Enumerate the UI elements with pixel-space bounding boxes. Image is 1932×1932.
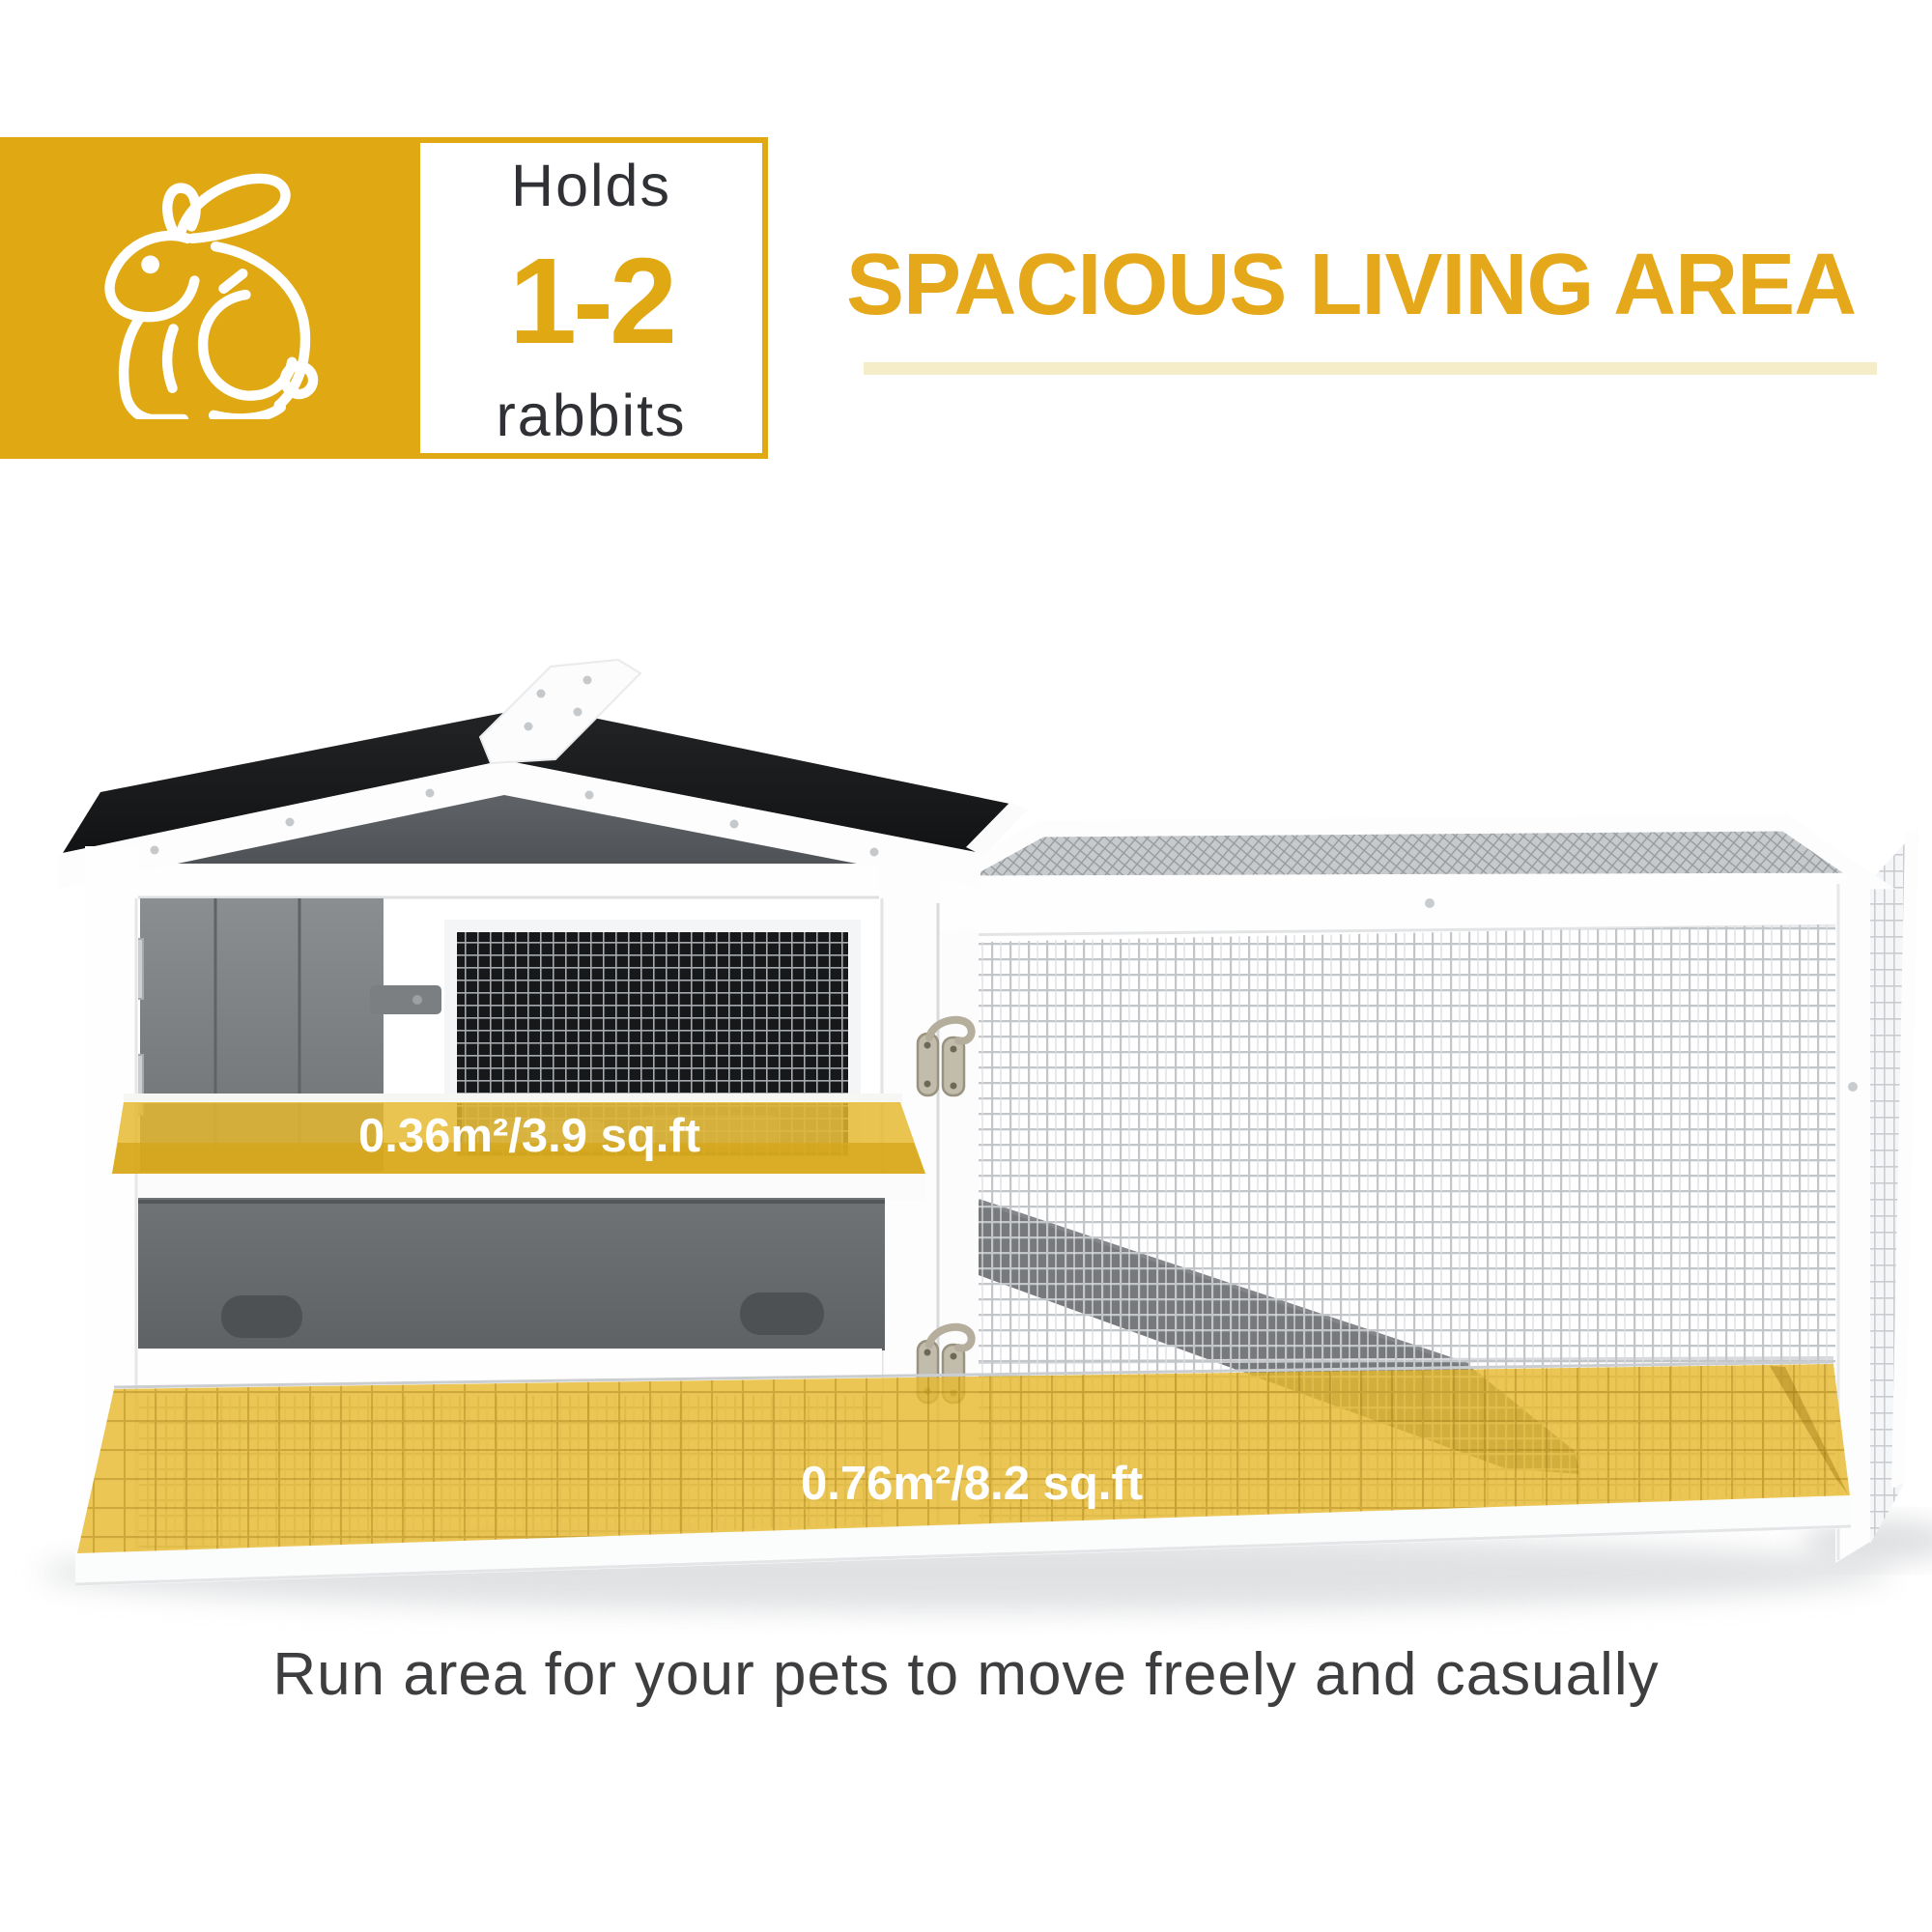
- screw: [1425, 898, 1435, 908]
- caption-text: Run area for your pets to move freely an…: [0, 1640, 1932, 1709]
- product-infographic: Holds 1-2 rabbits SPACIOUS LIVING AREA: [0, 0, 1932, 1932]
- hutch-floor-highlight: 0.36m²/3.9 sq.ft: [112, 1094, 925, 1174]
- latch-screw: [412, 995, 422, 1005]
- tray-handle: [740, 1293, 824, 1335]
- hutch-floor-area-label: 0.36m²/3.9 sq.ft: [358, 1110, 700, 1162]
- run-floor-area-label: 0.76m²/8.2 sq.ft: [801, 1458, 1143, 1510]
- door-latch-handle: [370, 985, 441, 1014]
- tray-handle: [221, 1295, 302, 1338]
- gable-beam: [138, 864, 879, 898]
- floor-shelf: [97, 1172, 925, 1200]
- shelf-highlight: [124, 1094, 902, 1103]
- screw: [1848, 1082, 1858, 1092]
